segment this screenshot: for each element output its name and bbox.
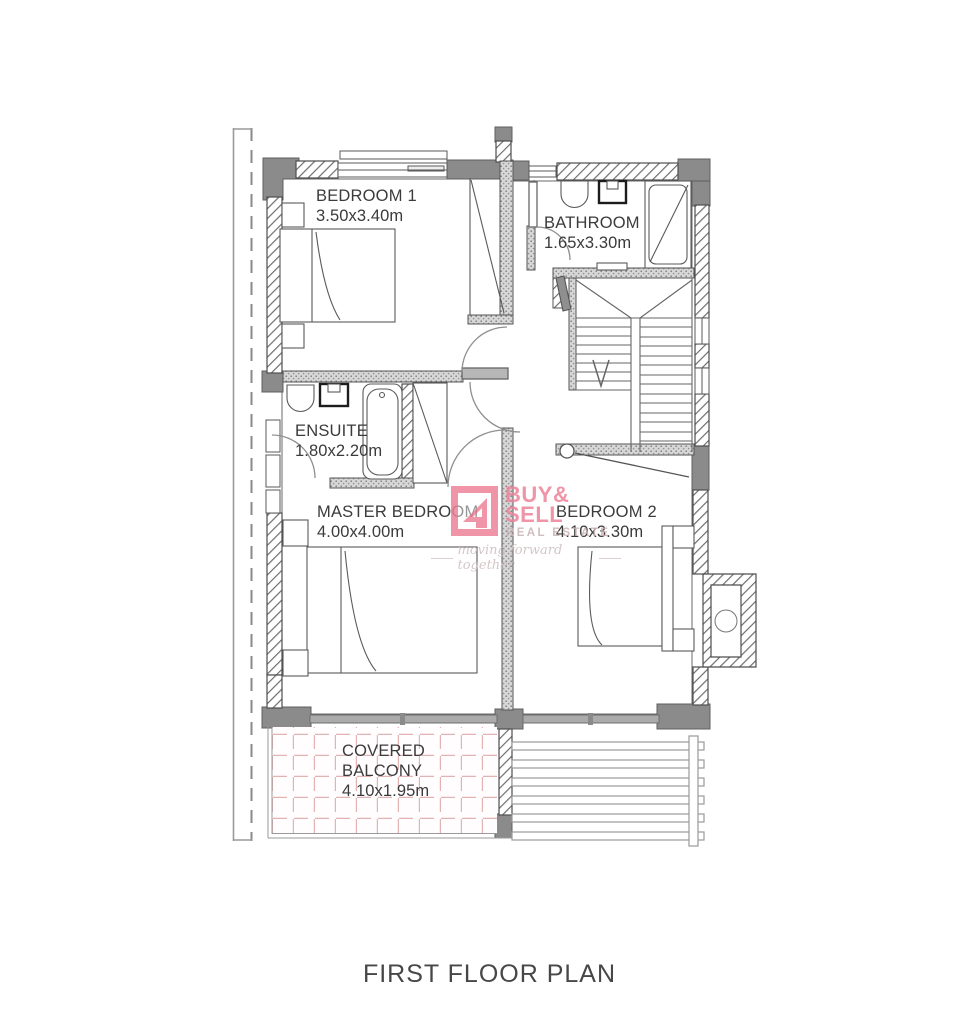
logo-word-real-estate: REAL ESTATE [506,527,610,539]
room-label-covered-balcony: COVERED BALCONY 4.10x1.95m [342,741,457,801]
plan-title: FIRST FLOOR PLAN [0,960,979,989]
site-boundary-lines [233,128,252,841]
room-label-ensuite: ENSUITE 1.80x2.20m [295,421,382,461]
master-door-arc-1 [470,382,520,432]
stair-down-arrow [593,360,609,386]
room-name: COVERED BALCONY [342,741,457,781]
bedroom2-door-pivot [560,444,574,458]
room-name: BATHROOM [544,213,640,233]
bedroom1-bed [280,229,395,322]
logo-tagline: moving forward together [431,543,621,573]
tagline-dash [599,558,621,559]
tagline-dash [431,558,453,559]
room-dims: 4.10x1.95m [342,781,457,801]
brand-logo: BUY& SELL REAL ESTATE moving forward tog… [449,483,629,573]
tagline-text: moving forward together [458,543,595,573]
bathroom-sink [561,181,588,208]
ensuite-sink [287,385,314,412]
room-name: ENSUITE [295,421,382,441]
hall-door-leaf [462,368,508,379]
master-nightstand [283,650,308,676]
bedroom1-nightstand [282,324,304,348]
room-label-bathroom: BATHROOM 1.65x3.30m [544,213,640,253]
bedroom1-closet [470,178,504,315]
bedroom1-nightstand [282,203,304,227]
bedroom2-nightstand [673,629,694,651]
master-nightstand [283,520,308,546]
bedroom2-nightstand [673,526,694,548]
room-dims: 1.80x2.20m [295,441,382,461]
logo-word-sell: SELL [505,504,563,526]
utility-box-fixture [715,610,737,632]
room-name: BEDROOM 1 [316,186,417,206]
bedroom2-door-leaf [575,453,689,477]
room-label-bedroom1: BEDROOM 1 3.50x3.40m [316,186,417,226]
master-door-arc-2 [448,430,505,487]
hall-door-arc [462,327,507,372]
room-dims: 3.50x3.40m [316,206,417,226]
logo-badge-icon [451,486,498,536]
room-dims: 1.65x3.30m [544,233,640,253]
bathroom-door-leaf [529,182,537,227]
bathroom-shelf [597,263,627,270]
deck-pergola [512,736,704,846]
floor-plan-canvas: BEDROOM 1 3.50x3.40m BATHROOM 1.65x3.30m… [0,0,979,1024]
